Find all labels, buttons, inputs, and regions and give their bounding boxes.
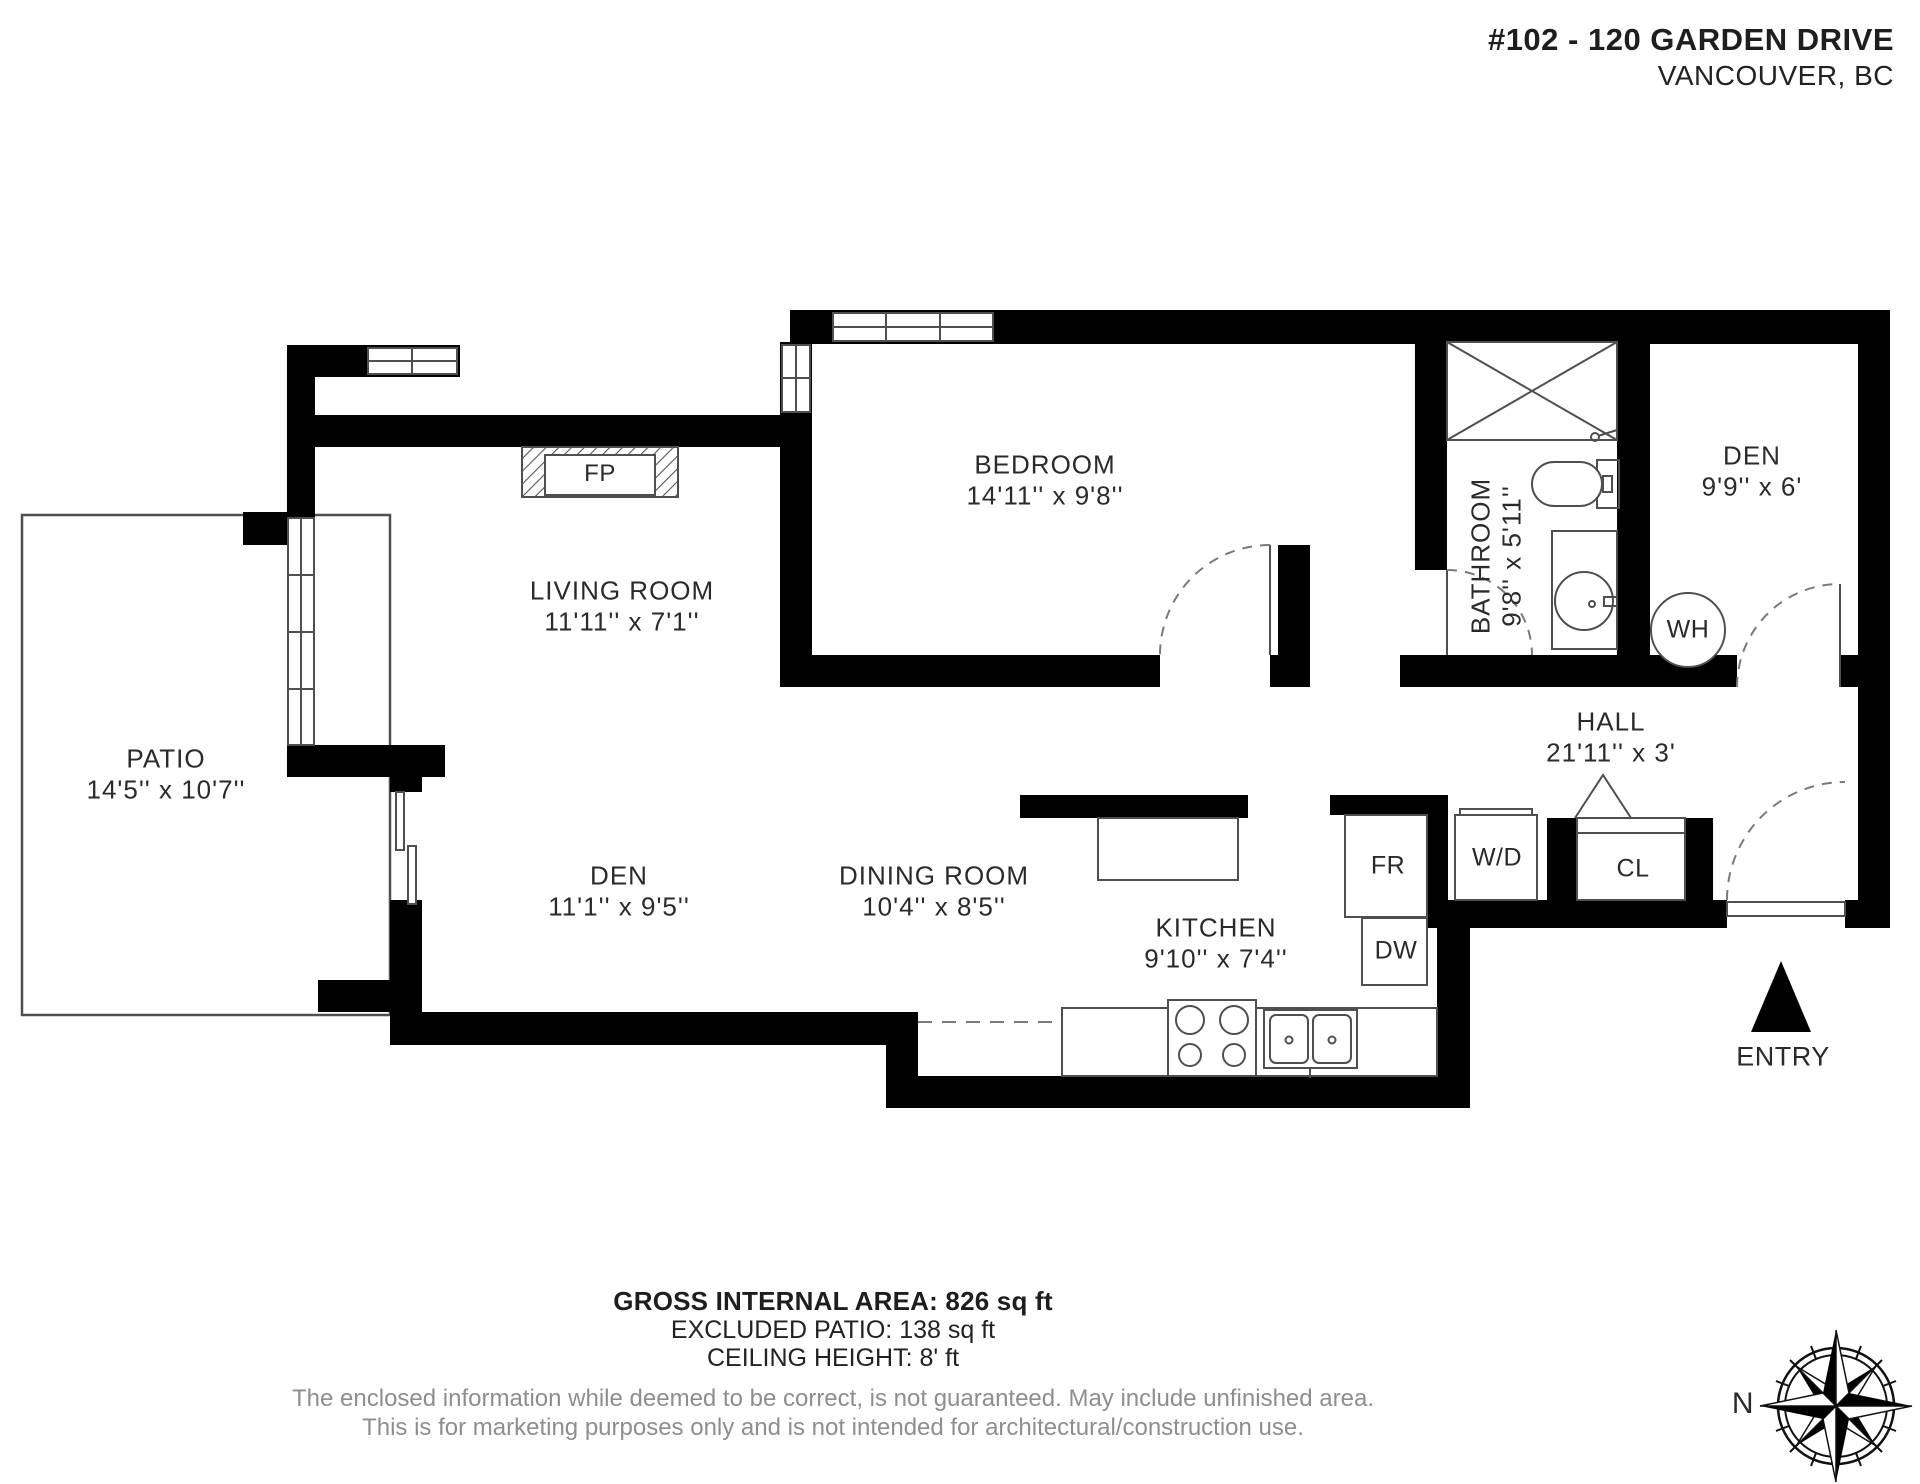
- page-title: #102 - 120 GARDEN DRIVE: [1488, 22, 1894, 59]
- room-label-hall: HALL 21'11'' x 3': [1546, 706, 1676, 767]
- room-label-dining-room: DINING ROOM 10'4'' x 8'5'': [839, 860, 1029, 921]
- fireplace-label: FP: [584, 460, 616, 488]
- patio-window-bank: [288, 518, 314, 745]
- washer-dryer-label: W/D: [1472, 844, 1522, 873]
- room-dims: 14'11'' x 9'8'': [966, 480, 1123, 511]
- compass-rose: [1757, 1327, 1915, 1484]
- room-dims: 11'1'' x 9'5'': [548, 891, 690, 922]
- disclaimer: The enclosed information while deemed to…: [292, 1384, 1374, 1442]
- bedroom-side-window: [782, 345, 810, 412]
- room-dims: 9'10'' x 7'4'': [1144, 943, 1288, 974]
- room-dims: 21'11'' x 3': [1546, 737, 1676, 768]
- room-label-bathroom: BATHROOM 9'8'' x 5'11'': [1465, 478, 1526, 634]
- room-name: DINING ROOM: [839, 860, 1029, 891]
- vanity-sink: [1552, 531, 1617, 649]
- compass-north-label: N: [1732, 1387, 1754, 1421]
- bedroom-top-window: [833, 313, 993, 341]
- shower: [1447, 342, 1617, 441]
- floorplan-page: { "header": { "title": "#102 - 120 GARDE…: [0, 0, 1920, 1484]
- room-label-den-upper: DEN 9'9'' x 6': [1702, 440, 1803, 501]
- page-subtitle: VANCOUVER, BC: [1488, 59, 1894, 92]
- water-heater-label: WH: [1667, 616, 1710, 645]
- stove: [1168, 1000, 1256, 1076]
- entry-label: ENTRY: [1736, 1042, 1830, 1073]
- room-dims: 11'11'' x 7'1'': [530, 606, 714, 637]
- footer: GROSS INTERNAL AREA: 826 sq ft EXCLUDED …: [292, 1286, 1374, 1442]
- room-name: KITCHEN: [1144, 912, 1288, 943]
- kitchen-sink: [1264, 1010, 1357, 1078]
- room-label-bedroom: BEDROOM 14'11'' x 9'8'': [966, 449, 1123, 510]
- room-name: DEN: [1702, 440, 1803, 471]
- closet-label: CL: [1617, 855, 1650, 884]
- room-name: BATHROOM: [1465, 478, 1496, 634]
- disclaimer-line-1: The enclosed information while deemed to…: [292, 1384, 1374, 1413]
- room-name: PATIO: [87, 743, 246, 774]
- room-name: DEN: [548, 860, 690, 891]
- room-name: LIVING ROOM: [530, 575, 714, 606]
- room-label-den-lower: DEN 11'1'' x 9'5'': [548, 860, 690, 921]
- entry-triangle: [1751, 961, 1811, 1032]
- room-label-kitchen: KITCHEN 9'10'' x 7'4'': [1144, 912, 1288, 973]
- den-door: [1737, 584, 1840, 687]
- room-dims: 10'4'' x 8'5'': [839, 891, 1029, 922]
- kitchen-island-counter: [1098, 818, 1238, 880]
- ceiling-height-text: CEILING HEIGHT: 8' ft: [292, 1344, 1374, 1372]
- excluded-patio-text: EXCLUDED PATIO: 138 sq ft: [292, 1316, 1374, 1344]
- gross-area-text: GROSS INTERNAL AREA: 826 sq ft: [292, 1286, 1374, 1316]
- room-name: HALL: [1546, 706, 1676, 737]
- closet-bifold-door: [1575, 775, 1631, 818]
- disclaimer-line-2: This is for marketing purposes only and …: [292, 1413, 1374, 1442]
- room-label-patio: PATIO 14'5'' x 10'7'': [87, 743, 246, 804]
- room-dims: 9'8'' x 5'11'': [1496, 478, 1527, 634]
- plan-header: #102 - 120 GARDEN DRIVE VANCOUVER, BC: [1488, 22, 1894, 92]
- dishwasher-label: DW: [1375, 937, 1418, 966]
- room-dims: 14'5'' x 10'7'': [87, 774, 246, 805]
- patio-slider-door: [396, 792, 416, 904]
- room-label-living-room: LIVING ROOM 11'11'' x 7'1'': [530, 575, 714, 636]
- toilet: [1532, 460, 1619, 508]
- fridge-label: FR: [1371, 852, 1405, 881]
- room-dims: 9'9'' x 6': [1702, 471, 1803, 502]
- living-room-top-window: [368, 348, 457, 374]
- room-name: BEDROOM: [966, 449, 1123, 480]
- entry-door: [1727, 782, 1845, 916]
- bedroom-door: [1160, 545, 1270, 655]
